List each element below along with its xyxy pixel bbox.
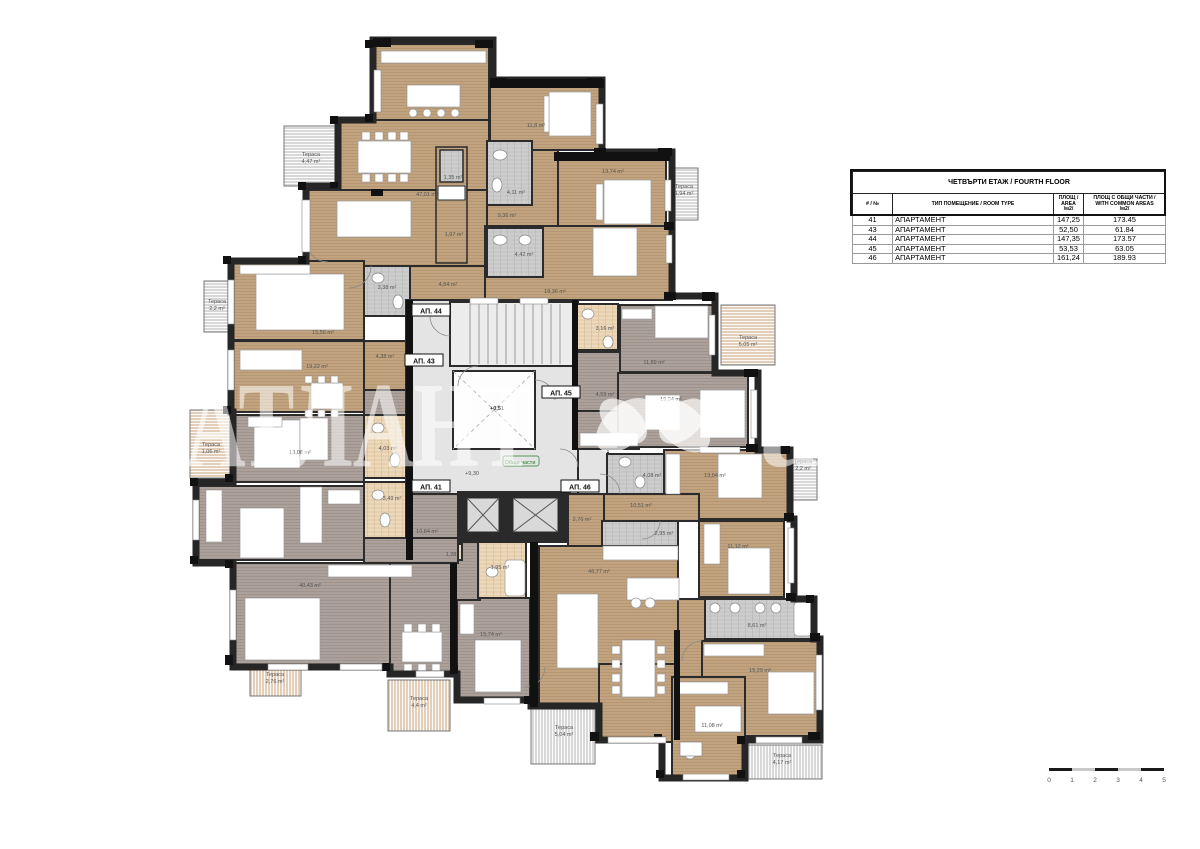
svg-text:5,05 m²: 5,05 m² (739, 342, 758, 348)
svg-text:4,08 m²: 4,08 m² (643, 473, 662, 479)
svg-text:2,2 m²: 2,2 m² (209, 306, 225, 312)
svg-text:8,61 m²: 8,61 m² (748, 623, 767, 629)
svg-text:Тераса: Тераса (208, 299, 227, 305)
svg-text:0: 0 (1047, 777, 1051, 784)
svg-text:4,4 m²: 4,4 m² (411, 703, 427, 709)
svg-text:4,47 m²: 4,47 m² (302, 159, 321, 165)
svg-text:18,36 m²: 18,36 m² (544, 289, 566, 295)
svg-text:4,59 m²: 4,59 m² (596, 392, 615, 398)
svg-text:1: 1 (1070, 777, 1074, 784)
svg-text:11,8 m²: 11,8 m² (527, 123, 545, 129)
svg-text:11,08 m²: 11,08 m² (701, 723, 722, 729)
svg-text:4,11 m²: 4,11 m² (507, 190, 525, 196)
svg-text:АТЛАНТ: АТЛАНТ (185, 358, 535, 493)
svg-text:АП. 46: АП. 46 (569, 485, 591, 492)
svg-text:1,97 m²: 1,97 m² (445, 232, 464, 238)
svg-text:2: 2 (1093, 777, 1097, 784)
svg-text:13,04 m²: 13,04 m² (704, 473, 726, 479)
svg-text:а: а (760, 358, 821, 493)
svg-text:2,76 m²: 2,76 m² (573, 517, 592, 523)
svg-text:3,38 m²: 3,38 m² (378, 285, 397, 291)
svg-text:4,42 m²: 4,42 m² (515, 252, 534, 258)
svg-text:5,04 m²: 5,04 m² (555, 732, 574, 738)
svg-text:2,76 m²: 2,76 m² (266, 679, 285, 685)
svg-text:1,35 m²: 1,35 m² (444, 175, 463, 181)
svg-text:10,84 m²: 10,84 m² (416, 529, 438, 535)
svg-text:11,12 m²: 11,12 m² (727, 544, 748, 550)
svg-text:АП. 44: АП. 44 (420, 309, 442, 316)
svg-text:Тераса: Тераса (410, 696, 429, 702)
svg-text:4: 4 (1139, 777, 1143, 784)
svg-text:Тераса: Тераса (773, 753, 792, 759)
svg-text:47,01 m²: 47,01 m² (416, 192, 438, 198)
svg-text:46,77 m²: 46,77 m² (588, 569, 610, 575)
svg-text:Тераса: Тераса (675, 184, 694, 190)
svg-text:1,94 m²: 1,94 m² (675, 191, 694, 197)
svg-text:10,51 m²: 10,51 m² (630, 503, 652, 509)
svg-text:13,74 m²: 13,74 m² (602, 169, 624, 175)
svg-text:3: 3 (1116, 777, 1120, 784)
svg-text:2,95 m²: 2,95 m² (655, 531, 674, 537)
svg-text:15,29 m²: 15,29 m² (749, 668, 771, 674)
svg-text:1,28: 1,28 (446, 552, 457, 558)
svg-text:3,49 m²: 3,49 m² (383, 496, 402, 502)
svg-text:3,16 m²: 3,16 m² (596, 326, 615, 332)
svg-text:1,95 m²: 1,95 m² (491, 565, 510, 571)
svg-text:11,89 m²: 11,89 m² (643, 360, 664, 366)
svg-text:5: 5 (1162, 777, 1166, 784)
svg-text:Тераса: Тераса (555, 725, 574, 731)
svg-text:Тераса: Тераса (266, 672, 285, 678)
svg-text:15,56 m²: 15,56 m² (312, 330, 334, 336)
svg-text:9,36 m²: 9,36 m² (498, 213, 517, 219)
svg-text:АП. 45: АП. 45 (550, 391, 572, 398)
svg-text:4,84 m²: 4,84 m² (439, 282, 458, 288)
svg-text:Тераса: Тераса (739, 335, 758, 341)
svg-text:4,17 m²: 4,17 m² (773, 760, 792, 766)
svg-text:Тераса: Тераса (302, 152, 321, 158)
svg-text:40,43 m²: 40,43 m² (299, 583, 321, 589)
svg-text:15,74 m²: 15,74 m² (480, 632, 502, 638)
